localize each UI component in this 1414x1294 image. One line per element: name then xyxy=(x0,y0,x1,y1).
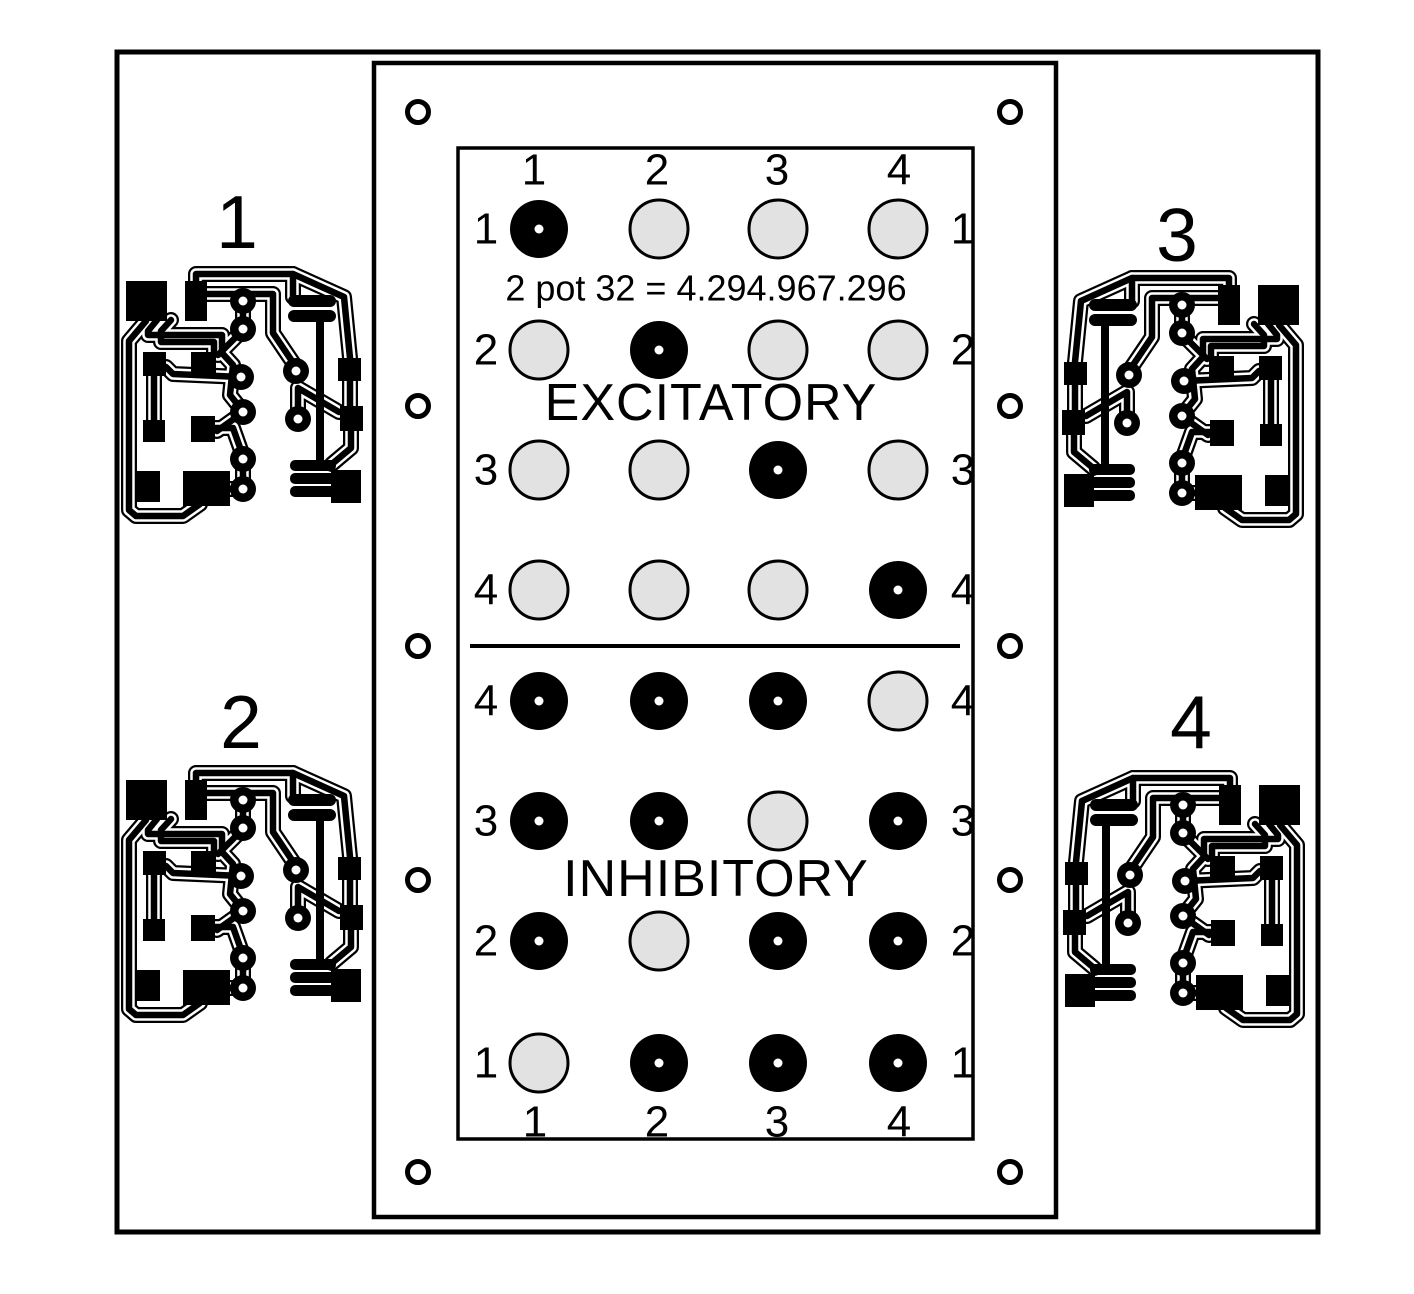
cell-inhibitory-row1-col1 xyxy=(510,1034,568,1092)
inhibitory-row-label-right-1: 1 xyxy=(951,1039,975,1088)
excitatory-row-label-right-2: 2 xyxy=(951,326,975,375)
cell-excitatory-row1-col2 xyxy=(630,200,688,258)
inhibitory-row-label-right-4: 4 xyxy=(951,677,975,726)
cell-inhibitory-row1-col4-center-dot xyxy=(894,1059,903,1068)
excitatory-col-label-3: 3 xyxy=(765,146,789,195)
excitatory-row-label-left-3: 3 xyxy=(474,446,498,495)
excitatory-row-label-left-1: 1 xyxy=(474,205,498,254)
excitatory-row-label-right-3: 3 xyxy=(951,446,975,495)
excitatory-row-label-right-4: 4 xyxy=(951,566,975,615)
mounting-hole xyxy=(408,870,429,891)
cell-excitatory-row4-col1 xyxy=(510,561,568,619)
cell-excitatory-row1-col1-center-dot xyxy=(535,225,544,234)
cell-excitatory-row3-col3-center-dot xyxy=(774,466,783,475)
cell-inhibitory-row3-col3 xyxy=(749,792,807,850)
cell-inhibitory-row1-col3-center-dot xyxy=(774,1059,783,1068)
cell-inhibitory-row4-col1-center-dot xyxy=(535,697,544,706)
inhibitory-col-label-2: 2 xyxy=(645,1098,669,1147)
mounting-hole xyxy=(1000,870,1021,891)
mounting-hole xyxy=(408,396,429,417)
cell-inhibitory-row3-col2-center-dot xyxy=(655,817,664,826)
cell-excitatory-row2-col3 xyxy=(749,321,807,379)
mounting-hole xyxy=(1000,1162,1021,1183)
pcb-module-1-label: 1 xyxy=(216,180,258,264)
inhibitory-row-label-left-4: 4 xyxy=(474,677,498,726)
inhibitory-col-label-3: 3 xyxy=(765,1098,789,1147)
pcb-module-3-label: 3 xyxy=(1156,193,1198,277)
excitatory-title: EXCITATORY xyxy=(545,374,878,432)
mounting-hole xyxy=(1000,102,1021,123)
cell-inhibitory-row3-col4-center-dot xyxy=(894,817,903,826)
mounting-hole xyxy=(408,102,429,123)
cell-excitatory-row4-col2 xyxy=(630,561,688,619)
cell-excitatory-row2-col1 xyxy=(510,321,568,379)
cell-excitatory-row2-col4 xyxy=(869,321,927,379)
cell-excitatory-row2-col2-center-dot xyxy=(655,346,664,355)
cell-inhibitory-row2-col4-center-dot xyxy=(894,937,903,946)
cell-inhibitory-row2-col2 xyxy=(630,912,688,970)
pcb-module-4-artwork xyxy=(1063,778,1300,1020)
excitatory-row-label-left-4: 4 xyxy=(474,566,498,615)
cell-excitatory-row3-col4 xyxy=(869,441,927,499)
pcb-module-4-label: 4 xyxy=(1170,680,1212,764)
mounting-holes xyxy=(408,102,1021,1183)
cell-inhibitory-row4-col3-center-dot xyxy=(774,697,783,706)
cell-inhibitory-row2-col1-center-dot xyxy=(535,937,544,946)
inhibitory-title: INHIBITORY xyxy=(563,850,869,908)
pcb-module-2-label: 2 xyxy=(220,680,262,764)
cell-excitatory-row1-col4 xyxy=(869,200,927,258)
inhibitory-row-label-right-2: 2 xyxy=(951,917,975,966)
excitatory-row-label-right-1: 1 xyxy=(951,205,975,254)
inhibitory-row-label-right-3: 3 xyxy=(951,797,975,846)
inhibitory-row-label-left-1: 1 xyxy=(474,1039,498,1088)
pcb-module-1-artwork xyxy=(126,274,363,516)
pcb-panel-diagram: 1 2 3 4 1 2 3 4 1 2 3 4 2 pot 32 = 4.294… xyxy=(0,0,1414,1294)
cell-inhibitory-row3-col1-center-dot xyxy=(535,817,544,826)
cell-inhibitory-row2-col3-center-dot xyxy=(774,937,783,946)
inhibitory-col-label-1: 1 xyxy=(523,1098,547,1147)
cell-excitatory-row3-col2 xyxy=(630,441,688,499)
excitatory-col-label-2: 2 xyxy=(645,146,669,195)
excitatory-col-label-1: 1 xyxy=(522,146,546,195)
pcb-module-3-artwork xyxy=(1062,278,1299,520)
cell-excitatory-row1-col3 xyxy=(749,200,807,258)
inhibitory-row-label-left-2: 2 xyxy=(474,917,498,966)
mounting-hole xyxy=(408,636,429,657)
power-formula-text: 2 pot 32 = 4.294.967.296 xyxy=(505,268,906,309)
mounting-hole xyxy=(1000,636,1021,657)
excitatory-row-label-left-2: 2 xyxy=(474,326,498,375)
pcb-module-2-artwork xyxy=(126,773,363,1015)
excitatory-section: 1 2 3 4 1 2 3 4 1 2 3 4 2 pot 32 = 4.294… xyxy=(474,146,975,620)
mounting-hole xyxy=(408,1162,429,1183)
inhibitory-row-label-left-3: 3 xyxy=(474,797,498,846)
cell-excitatory-row4-col4-center-dot xyxy=(894,586,903,595)
cell-inhibitory-row4-col2-center-dot xyxy=(655,697,664,706)
cell-excitatory-row3-col1 xyxy=(510,441,568,499)
cell-inhibitory-row1-col2-center-dot xyxy=(655,1059,664,1068)
inhibitory-section: 4 3 2 1 4 3 2 1 INHIBITORY 1 2 3 4 xyxy=(474,672,975,1147)
excitatory-col-label-4: 4 xyxy=(887,146,911,195)
outer-board-outline xyxy=(117,52,1318,1232)
cell-excitatory-row4-col3 xyxy=(749,561,807,619)
mounting-hole xyxy=(1000,396,1021,417)
inhibitory-col-label-4: 4 xyxy=(887,1098,911,1147)
cell-inhibitory-row4-col4 xyxy=(869,672,927,730)
